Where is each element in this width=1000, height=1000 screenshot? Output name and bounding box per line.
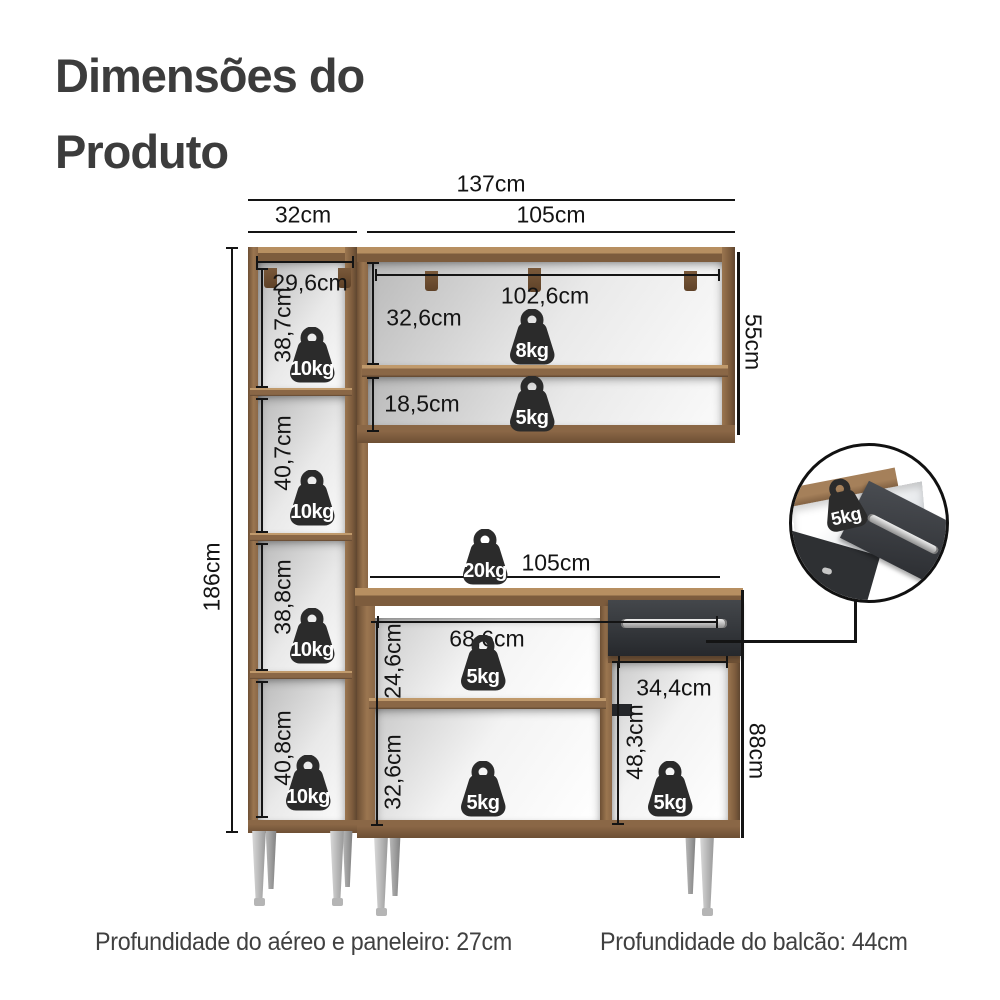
- weight-label: 5kg: [455, 666, 511, 689]
- dim-label-aereo-shelf-top: 32,6cm: [386, 305, 461, 332]
- dim-label-tower-height: 186cm: [199, 542, 226, 611]
- dim-line-balcao-right-height: [617, 661, 619, 825]
- dim-line-tower-section1: [261, 268, 263, 388]
- weight-badge-tower-3: 10kg: [284, 608, 340, 670]
- dim-line-aereo-shelf-top: [372, 262, 374, 365]
- dim-line-tower-section3: [261, 543, 263, 671]
- dim-label-total-width: 137cm: [456, 171, 525, 198]
- callout-connector-vertical: [854, 596, 857, 643]
- dim-line-right-width-top: [367, 231, 735, 233]
- weight-badge-balcao-shelf: 5kg: [455, 635, 511, 697]
- tower-back-leg-left: [264, 831, 278, 889]
- dim-label-balcao-right-width: 34,4cm: [636, 675, 711, 702]
- weight-badge-balcao-top: 20kg: [457, 529, 513, 591]
- dim-label-aereo-shelf-bottom: 18,5cm: [384, 391, 459, 418]
- weight-label: 8kg: [504, 340, 560, 363]
- dim-line-aereo-inner-width: [375, 274, 720, 276]
- tower-front-leg-left: [250, 831, 268, 903]
- balcao-foot-right: [702, 908, 713, 916]
- weight-badge-balcao-bottom: 5kg: [455, 761, 511, 823]
- weight-label: 5kg: [455, 792, 511, 815]
- weight-label: 10kg: [284, 358, 340, 381]
- weight-badge-tower-1: 10kg: [284, 327, 340, 389]
- dim-label-aereo-inner-width: 102,6cm: [501, 283, 589, 310]
- aereo-right-panel: [722, 247, 735, 443]
- tower-foot-right: [332, 898, 343, 906]
- page-title-line1: Dimensões do: [55, 38, 364, 114]
- dim-line-balcao-inner-width: [377, 621, 718, 623]
- balcao-front-leg-left: [372, 838, 390, 913]
- balcao-back-leg-right: [684, 838, 697, 894]
- product-dimensions-infographic: Dimensões do Produto: [0, 0, 1000, 1000]
- tower-shelf-1: [250, 388, 352, 396]
- dim-label-balcao-height: 88cm: [744, 723, 771, 779]
- tower-front-leg-right: [328, 831, 346, 903]
- dim-line-balcao-height: [741, 590, 744, 838]
- tower-foot-left: [254, 898, 265, 906]
- dim-label-right-width-top: 105cm: [516, 202, 585, 229]
- weight-label: 10kg: [284, 501, 340, 524]
- middle-connector-panel: [357, 247, 368, 588]
- dim-label-aereo-height: 55cm: [740, 314, 767, 370]
- dim-label-tower-width: 32cm: [275, 202, 331, 229]
- dim-line-tower-width: [248, 231, 357, 233]
- balcao-shelf: [369, 698, 606, 709]
- dim-label-balcao-section-bottom: 32,6cm: [380, 734, 407, 809]
- weight-badge-aereo-top: 8kg: [504, 309, 560, 371]
- weight-badge-tower-4: 10kg: [280, 755, 336, 817]
- dim-line-balcao-right-width: [618, 661, 728, 663]
- weight-label: 10kg: [284, 639, 340, 662]
- dim-line-tower-inner-width: [256, 261, 354, 263]
- tower-top-panel: [248, 247, 357, 261]
- weight-label: 5kg: [642, 792, 698, 815]
- dim-line-tower-section2: [261, 398, 263, 533]
- callout-connector-horizontal: [706, 640, 857, 643]
- dim-line-aereo-shelf-bottom: [372, 377, 374, 432]
- dim-line-balcao-sections: [376, 621, 378, 826]
- weight-badge-aereo-bottom: 5kg: [504, 376, 560, 438]
- balcao-back-leg-left: [388, 838, 402, 896]
- page-title: Dimensões do Produto: [55, 38, 364, 190]
- dim-label-balcao-section-top: 24,6cm: [380, 623, 407, 698]
- footer-note-aereo: Profundidade do aéreo e paneleiro: 27cm: [95, 928, 512, 957]
- weight-badge-tower-2: 10kg: [284, 470, 340, 532]
- dim-line-tower-section4: [261, 681, 263, 818]
- dim-line-tower-height: [231, 247, 233, 833]
- weight-label: 5kg: [504, 407, 560, 430]
- dim-label-balcao-width: 105cm: [521, 550, 590, 577]
- tower-shelf-2: [250, 533, 352, 541]
- page-title-line2: Produto: [55, 114, 364, 190]
- balcao-foot-left: [376, 908, 387, 916]
- footer-note-balcao: Profundidade do balcão: 44cm: [600, 928, 908, 957]
- drawer-front: [608, 600, 742, 656]
- balcao-front-leg-right: [698, 838, 716, 913]
- weight-label: 20kg: [457, 560, 513, 583]
- weight-label: 10kg: [280, 786, 336, 809]
- drawer-detail-callout: 5kg: [789, 443, 949, 603]
- balcao-left-panel: [357, 606, 375, 838]
- aereo-top-panel: [357, 247, 735, 262]
- tower-shelf-3: [250, 671, 352, 679]
- weight-badge-balcao-right: 5kg: [642, 761, 698, 823]
